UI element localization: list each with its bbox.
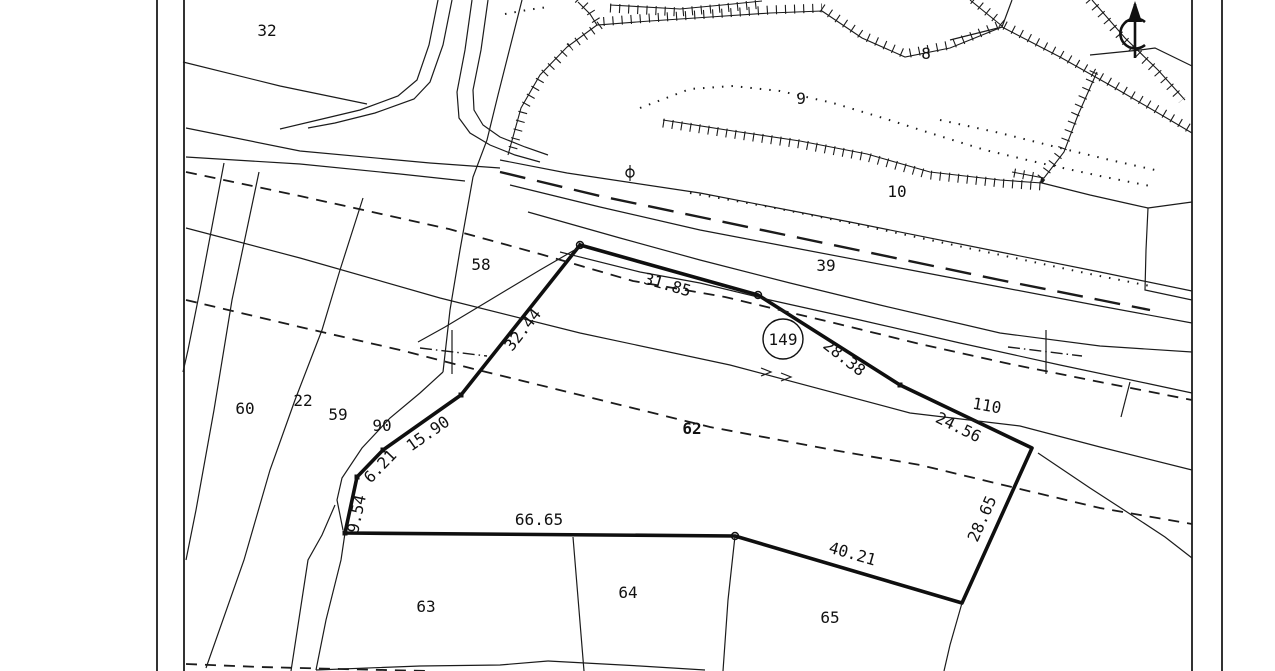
road-edge-north (500, 160, 1192, 291)
cadastral-map-canvas: 3289105839602259906263646511014931.8528.… (0, 0, 1275, 671)
slope-hatch-west-descender (508, 25, 597, 155)
boundary-60-east (186, 172, 259, 560)
parcel-label-10: 10 (887, 182, 906, 201)
dim-label-28-65: 28.65 (964, 493, 1001, 545)
parcel-label-90: 90 (372, 416, 391, 435)
vertex-square-1 (355, 475, 360, 480)
boundary-63-64 (573, 537, 584, 671)
boundary-bottom-b (548, 661, 705, 670)
dim-label-66-65: 66.65 (515, 510, 563, 529)
boundary-64-65 (723, 536, 735, 671)
point-label-149: 149 (769, 330, 798, 349)
parcel-label-8: 8 (921, 44, 931, 63)
parcel-label-64: 64 (618, 583, 637, 602)
boundary-left-band (186, 157, 465, 181)
road-edge-upper-left (183, 62, 367, 104)
north-arrow-circle-icon (1120, 19, 1145, 49)
slope-hatch-east-descender-ticks (1009, 72, 1094, 178)
parcel-label-65: 65 (820, 608, 839, 627)
road-centerline (500, 172, 1150, 310)
dim-label-28-38: 28.38 (820, 335, 870, 380)
boundary-63-west-a (316, 533, 345, 670)
parcel-label-60: 60 (235, 399, 254, 418)
slope-hatch-ridge-east-ticks (822, 8, 1192, 130)
contour-dotted-a (640, 86, 1150, 186)
dim-label-9-54: 9.54 (343, 493, 370, 535)
boundary-bottom-a (316, 661, 548, 670)
slope-hatch-ne-peak-ticks (973, 0, 1005, 26)
vertex-square-3 (459, 393, 464, 398)
boundary-northeast-d (1121, 382, 1130, 417)
parcel-label-9: 9 (796, 89, 806, 108)
cadastral-map-page: 3289105839602259906263646511014931.8528.… (0, 0, 1275, 671)
boundary-strip-39-a (528, 212, 1192, 352)
track-curve-east-inner (457, 0, 540, 162)
parcel-label-32: 32 (257, 21, 276, 40)
vertex-square-0 (898, 383, 903, 388)
parcel-label-62: 62 (682, 419, 701, 438)
slope-hatch-middle-ticks (663, 123, 1042, 186)
road-edge-lower-left (186, 128, 500, 168)
track-curve-west-inner (308, 0, 452, 128)
grid-line-west (420, 348, 487, 356)
boundary-65-east (944, 603, 962, 671)
slope-hatch-west-descender-ticks (511, 25, 600, 155)
track-curve-east-outer (473, 0, 548, 155)
parcel-label-22: 22 (293, 391, 312, 410)
boundary-58-west (443, 0, 522, 372)
dim-label-32-44: 32.44 (500, 305, 545, 355)
slope-hatch-main-upper-ticks (578, 0, 822, 22)
slope-hatch-ridge-east (822, 11, 1192, 133)
boundary-63-west-b (291, 505, 335, 671)
boundary-northeast-b (1148, 202, 1192, 208)
parcel-label-110: 110 (971, 394, 1003, 418)
track-curve-west-outer (280, 0, 438, 129)
boundary-58-east (418, 248, 578, 342)
boundary-northeast-a (1042, 183, 1148, 208)
slope-hatch-top-edge (610, 1, 762, 9)
parcel-label-39: 39 (816, 256, 835, 275)
parcel-label-63: 63 (416, 597, 435, 616)
parcel-label-59: 59 (328, 405, 347, 424)
contour-dotted-b (940, 120, 1155, 170)
dim-label-6-21: 6.21 (360, 446, 400, 487)
boundary-60-west (183, 163, 224, 372)
contour-dotted-c (505, 7, 548, 14)
grid-line-east (1008, 347, 1082, 356)
boundary-22-59 (206, 198, 363, 668)
boundary-southeast (1038, 453, 1192, 558)
parcel-label-58: 58 (471, 255, 490, 274)
